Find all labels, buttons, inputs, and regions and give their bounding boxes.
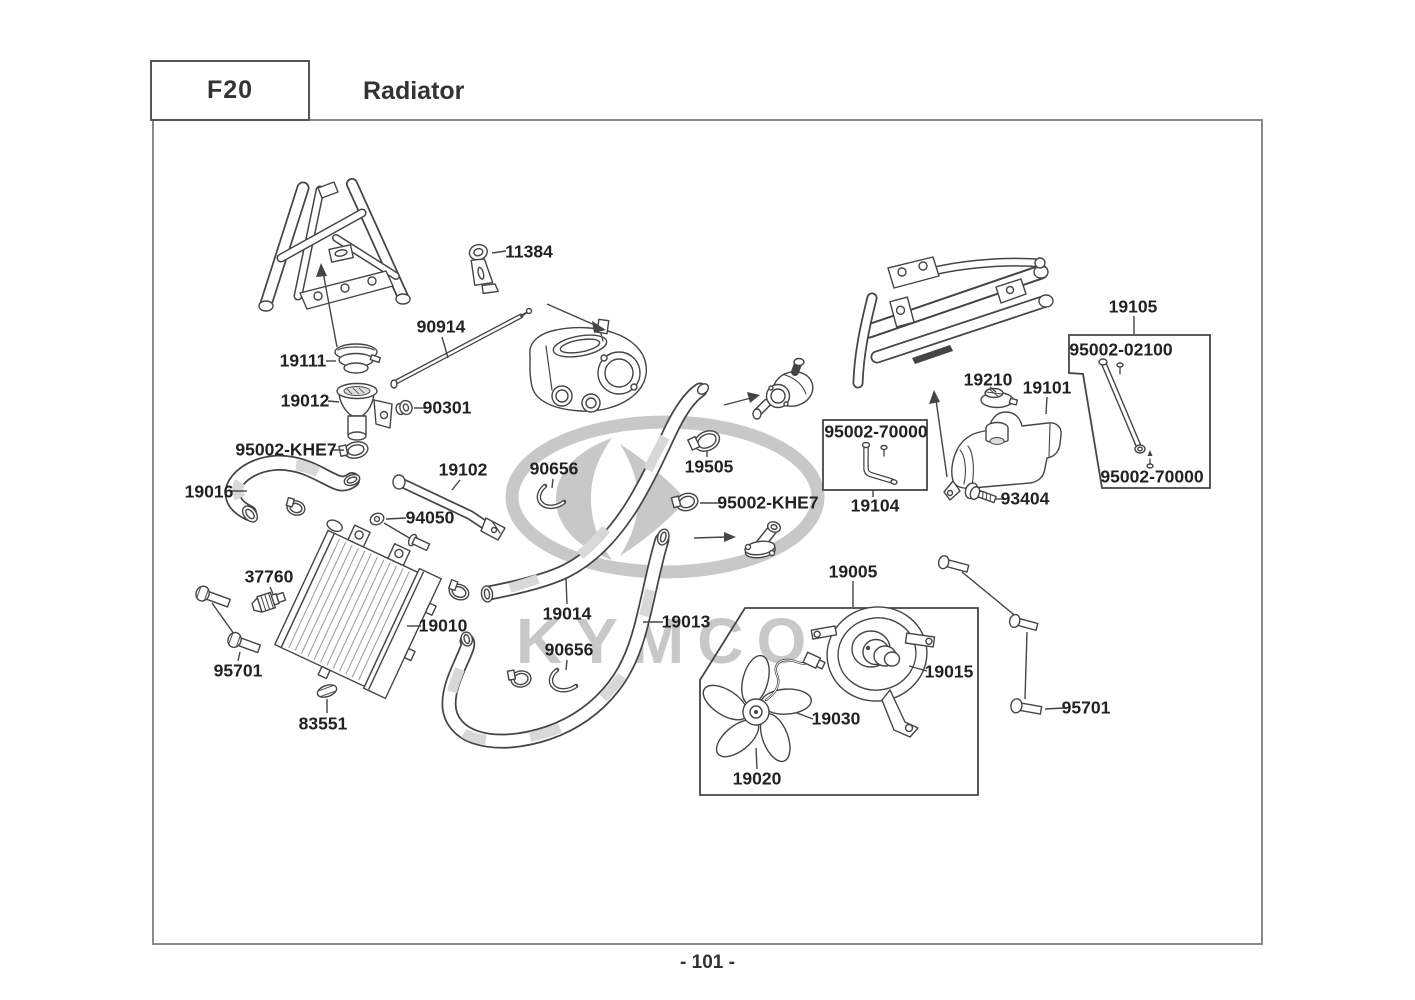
part-label-19101: 19101 [1023,378,1072,399]
part-label-95002-khe7-b: 95002-KHE7 [717,493,818,514]
part-label-95701-right: 95701 [1062,698,1111,719]
labels-layer: 113849091419111190129030195002-KHE719016… [0,0,1415,1000]
part-label-19105: 19105 [1109,297,1158,318]
part-label-19014: 19014 [543,604,592,625]
part-label-95002-khe7-a: 95002-KHE7 [235,440,336,461]
section-title: Radiator [363,77,464,106]
part-label-19111: 19111 [280,351,327,372]
part-label-90301: 90301 [423,398,472,419]
part-label-95002-70000-rod: 95002-70000 [1100,467,1203,488]
section-code: F20 [207,76,253,105]
part-label-19016: 19016 [185,482,234,503]
part-label-95002-70000-pipe: 95002-70000 [824,422,927,443]
part-label-19015: 19015 [925,662,974,683]
part-label-94050: 94050 [406,508,455,529]
part-label-19020: 19020 [733,769,782,790]
part-label-19210: 19210 [964,370,1013,391]
part-label-93404: 93404 [1001,489,1050,510]
part-label-37760: 37760 [245,567,294,588]
part-label-19010: 19010 [419,616,468,637]
part-label-19012: 19012 [281,391,330,412]
part-label-90914: 90914 [417,317,466,338]
section-code-box: F20 [150,60,310,121]
part-label-19013: 19013 [662,612,711,633]
part-label-19104: 19104 [851,496,900,517]
part-label-11384: 11384 [505,242,553,263]
part-label-90656-b: 90656 [545,640,594,661]
part-label-19030: 19030 [812,709,861,730]
part-label-95701-left: 95701 [214,661,263,682]
part-label-19505: 19505 [685,457,734,478]
page-number: - 101 - [152,952,1263,974]
manual-page: F20 Radiator KYMCO [0,0,1415,1000]
part-label-90656-a: 90656 [530,459,579,480]
part-label-19005: 19005 [829,562,878,583]
part-label-83551: 83551 [299,714,348,735]
part-label-19102: 19102 [439,460,488,481]
part-label-95002-02100: 95002-02100 [1069,340,1172,361]
